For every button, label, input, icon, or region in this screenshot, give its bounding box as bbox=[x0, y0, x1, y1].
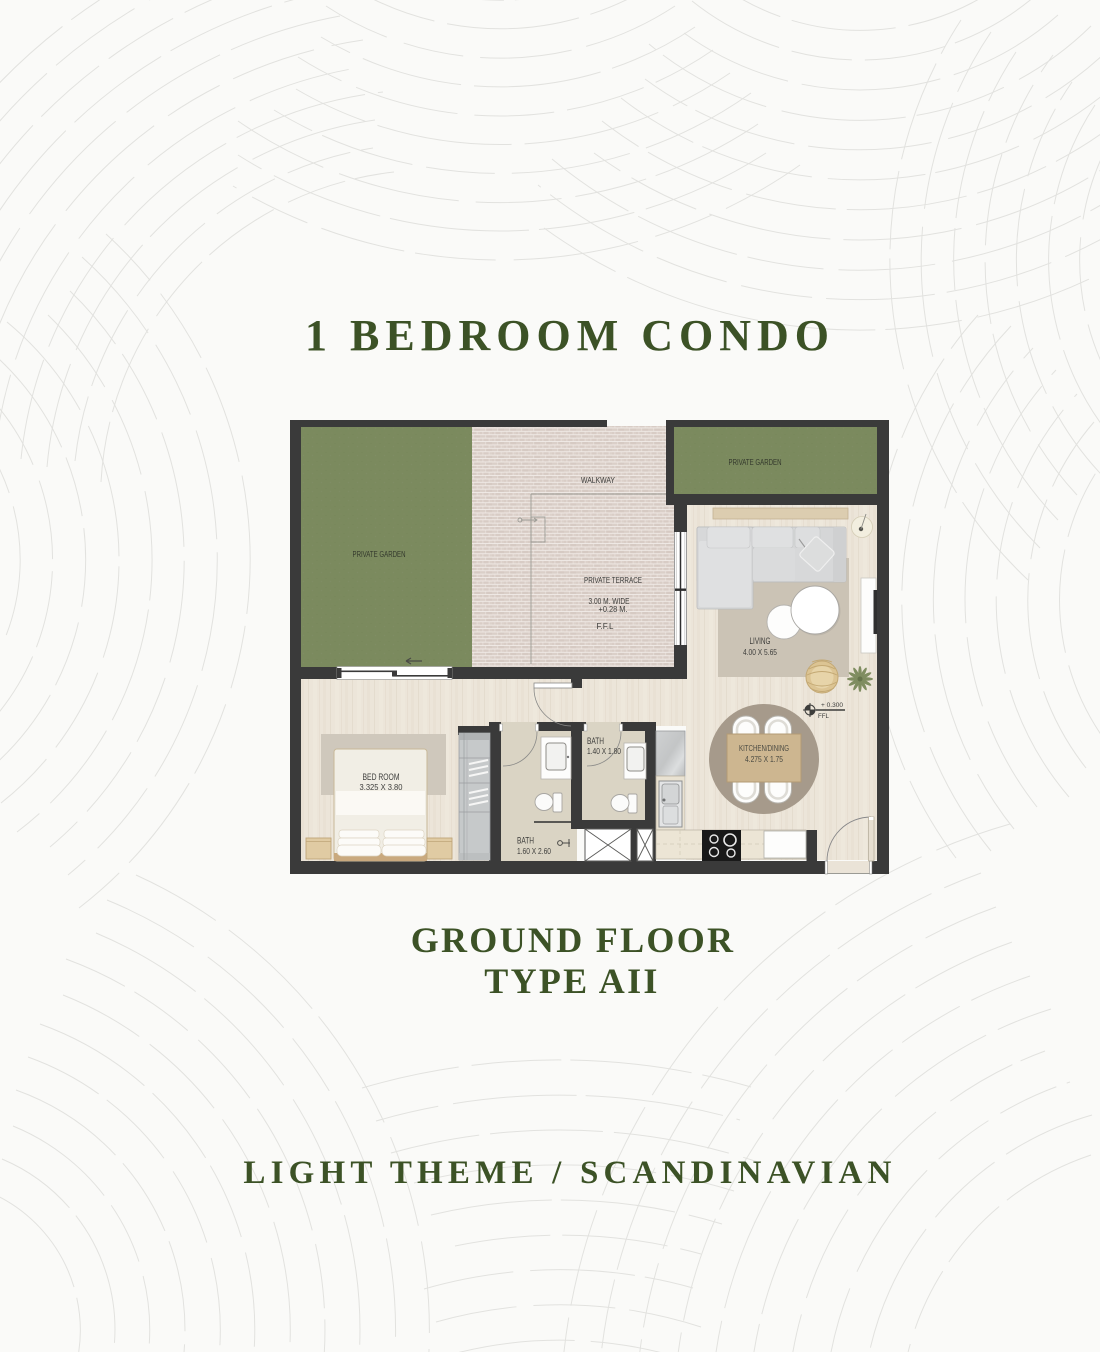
svg-text:1.40 X 1.80: 1.40 X 1.80 bbox=[587, 746, 621, 756]
svg-text:1.60 X 2.60: 1.60 X 2.60 bbox=[517, 846, 551, 856]
svg-text:+ 0.300: + 0.300 bbox=[821, 702, 843, 709]
svg-text:FFL: FFL bbox=[818, 713, 829, 720]
svg-text:4.275 X 1.75: 4.275 X 1.75 bbox=[745, 754, 783, 764]
svg-text:KITCHEN/DINING: KITCHEN/DINING bbox=[739, 743, 789, 753]
svg-text:PRIVATE GARDEN: PRIVATE GARDEN bbox=[729, 457, 782, 467]
svg-text:WALKWAY: WALKWAY bbox=[581, 475, 615, 485]
svg-text:BATH: BATH bbox=[517, 836, 534, 846]
svg-text:+0.28 M.: +0.28 M. bbox=[599, 604, 628, 614]
svg-text:4.00 X 5.65: 4.00 X 5.65 bbox=[743, 647, 777, 657]
svg-text:BATH: BATH bbox=[587, 736, 604, 746]
svg-text:3.325 X 3.80: 3.325 X 3.80 bbox=[360, 782, 403, 792]
svg-text:PRIVATE TERRACE: PRIVATE TERRACE bbox=[584, 575, 642, 585]
svg-text:F.F.L: F.F.L bbox=[597, 621, 614, 631]
svg-text:PRIVATE GARDEN: PRIVATE GARDEN bbox=[353, 549, 406, 559]
svg-text:BED ROOM: BED ROOM bbox=[363, 772, 400, 782]
svg-text:LIVING: LIVING bbox=[750, 636, 771, 646]
